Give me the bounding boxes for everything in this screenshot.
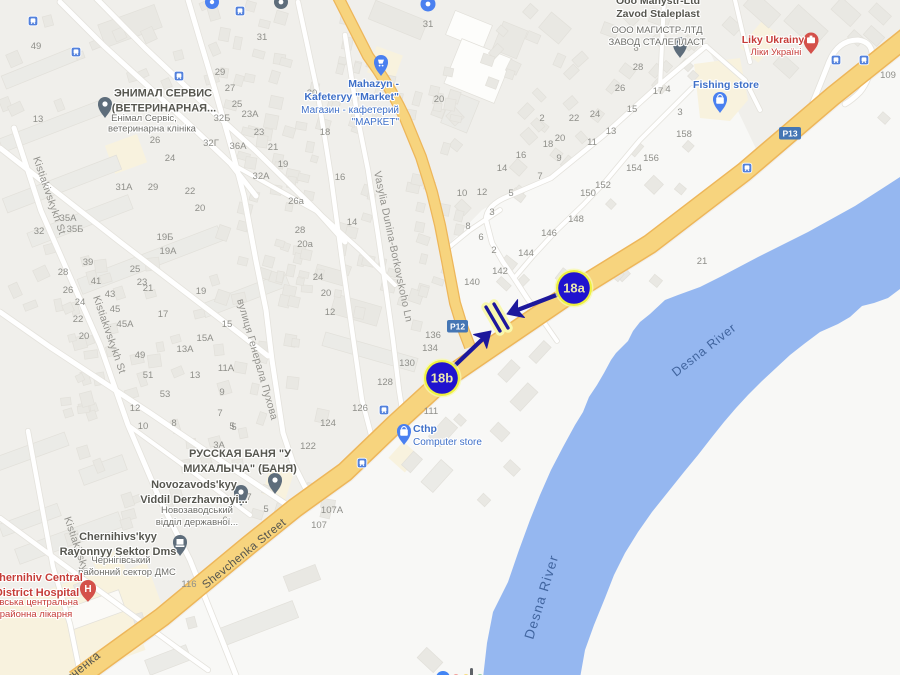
svg-text:16: 16	[516, 150, 527, 161]
svg-text:146: 146	[541, 228, 557, 239]
svg-text:Novozavods'kyy: Novozavods'kyy	[151, 479, 238, 491]
svg-text:8: 8	[171, 418, 176, 429]
svg-text:ЗАВОД СТАЛЕПЛАСТ: ЗАВОД СТАЛЕПЛАСТ	[608, 37, 705, 48]
svg-text:130: 130	[399, 358, 415, 369]
svg-text:гівська центральна: гівська центральна	[0, 597, 79, 608]
svg-text:144: 144	[518, 248, 534, 259]
svg-text:"МАРКЕТ": "МАРКЕТ"	[352, 117, 400, 128]
svg-text:28: 28	[633, 62, 644, 73]
svg-text:13: 13	[606, 126, 617, 137]
svg-text:28: 28	[58, 267, 69, 278]
svg-text:35Б: 35Б	[67, 224, 84, 235]
svg-text:13: 13	[190, 370, 201, 381]
svg-text:22: 22	[185, 186, 196, 197]
svg-text:P12: P12	[450, 322, 465, 332]
svg-text:152: 152	[595, 180, 611, 191]
svg-text:15: 15	[222, 319, 233, 330]
svg-text:26: 26	[615, 83, 626, 94]
svg-text:36А: 36А	[230, 141, 248, 152]
svg-text:51: 51	[143, 370, 154, 381]
svg-text:Ooo Mahystr-Ltd: Ooo Mahystr-Ltd	[616, 0, 700, 7]
svg-text:10: 10	[138, 421, 149, 432]
svg-text:5: 5	[229, 421, 234, 432]
svg-text:РУССКАЯ БАНЯ "У: РУССКАЯ БАНЯ "У	[189, 448, 291, 460]
svg-text:9: 9	[219, 387, 224, 398]
svg-text:ветеринарна клініка: ветеринарна клініка	[108, 124, 197, 135]
svg-text:17: 17	[653, 86, 664, 97]
svg-text:14: 14	[497, 163, 508, 174]
svg-text:Kafeteryy "Market": Kafeteryy "Market"	[304, 91, 399, 103]
svg-text:20: 20	[434, 94, 445, 105]
svg-text:12: 12	[325, 307, 336, 318]
svg-text:21: 21	[697, 256, 708, 267]
svg-text:126: 126	[352, 403, 368, 414]
svg-text:Chernihiv Central: Chernihiv Central	[0, 572, 83, 584]
svg-text:43: 43	[105, 289, 116, 300]
svg-text:11А: 11А	[218, 363, 235, 374]
svg-text:150: 150	[580, 188, 596, 199]
svg-text:12: 12	[477, 187, 488, 198]
svg-text:18b: 18b	[431, 371, 453, 386]
svg-text:23А: 23А	[242, 109, 260, 120]
svg-text:142: 142	[492, 266, 508, 277]
svg-text:2: 2	[539, 113, 544, 124]
svg-text:Fishing store: Fishing store	[693, 79, 759, 91]
svg-text:111: 111	[424, 406, 438, 417]
svg-text:18: 18	[320, 127, 331, 138]
svg-text:Магазин - кафетерий: Магазин - кафетерий	[301, 104, 399, 116]
svg-text:18: 18	[543, 139, 554, 150]
svg-text:32Г: 32Г	[203, 138, 219, 149]
svg-text:31: 31	[257, 32, 268, 43]
svg-text:148: 148	[568, 214, 584, 225]
svg-text:22: 22	[569, 113, 580, 124]
svg-text:49: 49	[31, 41, 42, 52]
svg-text:24: 24	[165, 153, 176, 164]
svg-text:19Б: 19Б	[157, 232, 174, 243]
svg-text:32: 32	[34, 226, 45, 237]
svg-text:ООО МАГИСТР-ЛТД: ООО МАГИСТР-ЛТД	[611, 25, 703, 36]
svg-text:21: 21	[143, 283, 154, 294]
svg-text:6: 6	[478, 232, 483, 243]
svg-text:20: 20	[79, 331, 90, 342]
svg-text:20: 20	[195, 203, 206, 214]
svg-text:32Б: 32Б	[214, 113, 231, 124]
svg-text:26: 26	[63, 285, 74, 296]
svg-text:МИХАЛЫЧА" (БАНЯ): МИХАЛЫЧА" (БАНЯ)	[183, 463, 297, 475]
svg-text:9: 9	[556, 153, 561, 164]
svg-text:23: 23	[254, 127, 265, 138]
svg-text:20: 20	[321, 288, 332, 299]
svg-text:20а: 20а	[297, 239, 314, 250]
svg-text:53: 53	[160, 389, 171, 400]
svg-text:3: 3	[489, 207, 494, 218]
svg-text:Zavod Staleplast: Zavod Staleplast	[616, 8, 700, 20]
svg-text:109: 109	[880, 70, 896, 81]
svg-text:154: 154	[626, 163, 642, 174]
svg-text:Cthp: Cthp	[413, 423, 437, 435]
svg-text:Chernihivs'kyy: Chernihivs'kyy	[79, 531, 158, 543]
svg-text:5: 5	[263, 504, 268, 515]
svg-text:107А: 107А	[321, 505, 344, 516]
svg-text:районний сектор ДМС: районний сектор ДМС	[78, 567, 176, 578]
svg-text:17: 17	[158, 309, 169, 320]
svg-text:107: 107	[311, 520, 327, 531]
svg-text:39: 39	[83, 257, 94, 268]
svg-text:156: 156	[643, 153, 659, 164]
svg-text:28: 28	[295, 225, 306, 236]
svg-text:49: 49	[135, 350, 146, 361]
svg-text:31А: 31А	[116, 182, 134, 193]
svg-text:22: 22	[73, 314, 84, 325]
svg-text:15: 15	[627, 104, 638, 115]
svg-text:24: 24	[313, 272, 324, 283]
svg-text:20: 20	[555, 133, 566, 144]
svg-text:Енімал Сервіс,: Енімал Сервіс,	[111, 113, 177, 124]
svg-text:26: 26	[150, 135, 161, 146]
svg-text:29: 29	[215, 67, 226, 78]
svg-text:16: 16	[335, 172, 346, 183]
svg-text:ЭНИМАЛ СЕРВИС: ЭНИМАЛ СЕРВИС	[114, 88, 212, 100]
svg-text:13: 13	[33, 114, 44, 125]
svg-text:136: 136	[425, 330, 441, 341]
svg-text:24: 24	[75, 297, 86, 308]
svg-text:Mahazyn -: Mahazyn -	[348, 78, 399, 90]
svg-text:Computer store: Computer store	[413, 437, 482, 448]
svg-text:3: 3	[677, 107, 682, 118]
svg-text:7: 7	[217, 408, 222, 419]
svg-text:27: 27	[225, 83, 236, 94]
svg-text:45: 45	[110, 304, 121, 315]
svg-text:19А: 19А	[160, 246, 178, 257]
svg-text:Новозаводський: Новозаводський	[161, 505, 233, 516]
svg-text:19: 19	[278, 159, 289, 170]
svg-text:P13: P13	[782, 129, 797, 139]
svg-text:45А: 45А	[117, 319, 135, 330]
svg-text:21: 21	[268, 142, 279, 153]
svg-text:15А: 15А	[197, 333, 215, 344]
svg-text:122: 122	[300, 441, 316, 452]
svg-text:Liky Ukrainy: Liky Ukrainy	[742, 34, 805, 46]
svg-text:11: 11	[587, 137, 597, 148]
svg-text:Чернігівський: Чернігівський	[91, 555, 150, 566]
svg-text:12: 12	[130, 403, 141, 414]
svg-text:H: H	[84, 584, 91, 595]
svg-text:140: 140	[464, 277, 480, 288]
svg-text:124: 124	[320, 418, 336, 429]
svg-text:відділ державної...: відділ державної...	[156, 517, 238, 528]
svg-text:158: 158	[676, 129, 692, 140]
svg-text:5: 5	[508, 188, 513, 199]
svg-text:14: 14	[347, 217, 358, 228]
svg-text:13А: 13А	[177, 344, 195, 355]
svg-text:41: 41	[91, 276, 102, 287]
svg-text:2: 2	[491, 245, 496, 256]
svg-text:128: 128	[377, 377, 393, 388]
svg-text:4: 4	[665, 84, 670, 95]
svg-text:31: 31	[423, 19, 434, 30]
svg-text:134: 134	[422, 343, 438, 354]
svg-text:25: 25	[130, 264, 141, 275]
svg-text:29: 29	[148, 182, 159, 193]
svg-text:19: 19	[196, 286, 207, 297]
svg-text:10: 10	[457, 188, 468, 199]
svg-text:26а: 26а	[288, 196, 305, 207]
svg-text:8: 8	[465, 221, 470, 232]
svg-text:7: 7	[537, 171, 542, 182]
svg-text:18a: 18a	[563, 281, 585, 296]
svg-text:24: 24	[590, 109, 601, 120]
svg-text:32А: 32А	[253, 171, 271, 182]
svg-text:116: 116	[181, 579, 196, 590]
svg-text:районна лікарня: районна лікарня	[0, 609, 72, 620]
svg-text:Ліки Україні: Ліки Україні	[751, 47, 802, 58]
